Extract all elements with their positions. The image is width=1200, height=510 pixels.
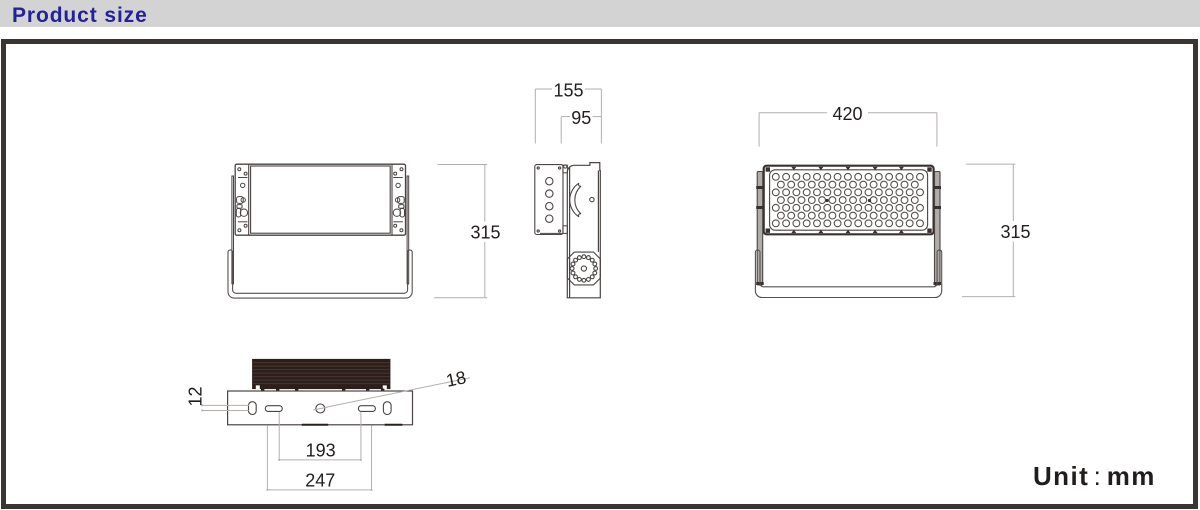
svg-text:155: 155 [553, 81, 583, 101]
svg-text:12: 12 [186, 386, 206, 406]
svg-text:193: 193 [306, 441, 336, 461]
svg-text:315: 315 [1000, 222, 1030, 242]
svg-text:247: 247 [305, 471, 335, 491]
svg-text:95: 95 [571, 108, 591, 128]
svg-text:18: 18 [444, 367, 468, 391]
svg-text:420: 420 [832, 104, 862, 124]
svg-text:315: 315 [470, 223, 500, 243]
svg-text:Unit:mm: Unit:mm [1033, 461, 1156, 491]
